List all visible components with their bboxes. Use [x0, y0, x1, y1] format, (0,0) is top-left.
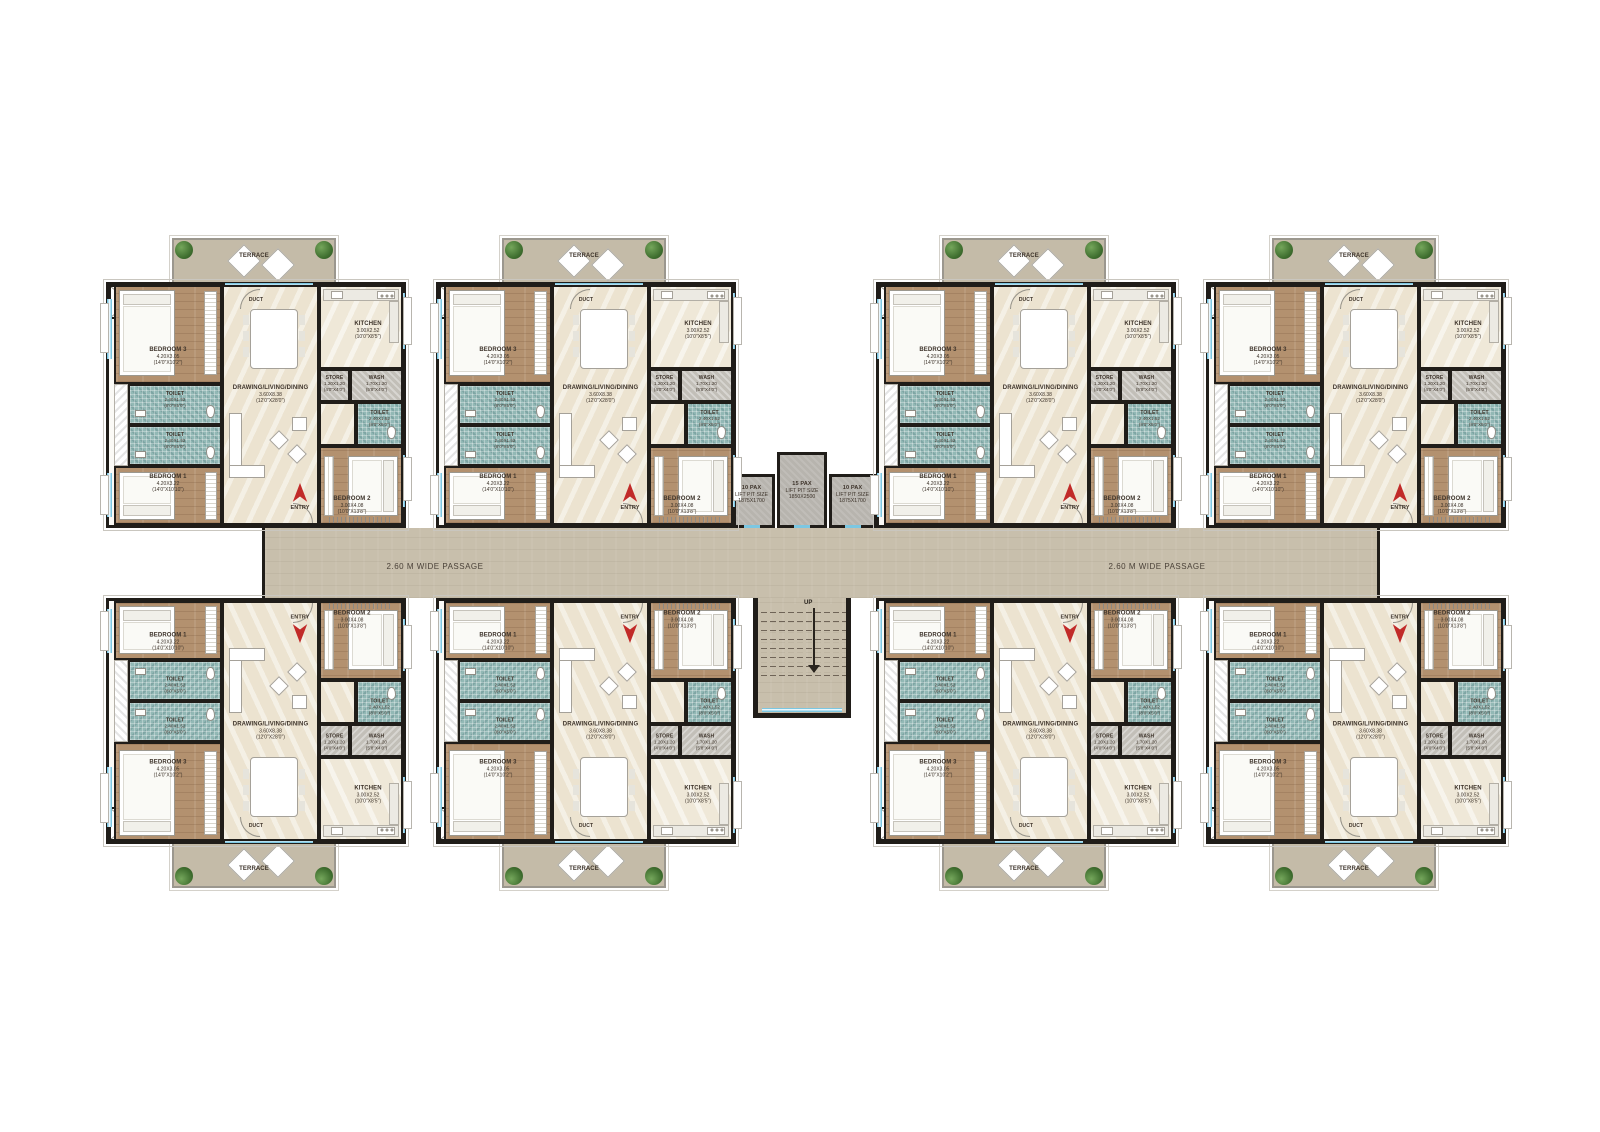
room-dim-ft: (14'0"X10'2"): [446, 360, 550, 366]
window-ledge: [430, 475, 439, 515]
room-label: KITCHEN 3.00X2.52 (10'0"X8'5"): [665, 785, 731, 805]
window-ledge: [733, 297, 742, 345]
room-toilet-2: TOILET 2.40X1.52 (8'0"X5'0"): [1228, 425, 1322, 466]
unit-body: BEDROOM 3 4.20X3.05 (14'0"X10'2") TOILET…: [876, 282, 1176, 528]
room-label: DRAWING/LIVING/DINING 3.60X8.38 (12'0"X2…: [224, 385, 317, 405]
room-label: TOILET 2.40X1.52 (8'0"X5'0"): [688, 410, 731, 427]
room-store: STORE 1.20X1.20 (4'0"X4'0"): [1419, 369, 1450, 402]
room-dim-ft: (4'0"X4'0"): [321, 745, 348, 751]
room-toilet-2: TOILET 2.40X1.52 (8'0"X5'0"): [458, 660, 552, 701]
room-label: TOILET 2.40X1.52 (8'0"X5'0"): [1128, 699, 1171, 716]
room-toilet-1: TOILET 2.40X1.52 (8'0"X5'0"): [128, 384, 222, 425]
unit-entry: ENTRY: [1055, 481, 1085, 523]
duct-label-text: DUCT: [109, 823, 403, 829]
room-label: BEDROOM 1 4.20X3.22 (14'0"X10'10"): [446, 632, 550, 652]
room-label: WASH 1.70X1.20 (5'8"X4'0"): [1122, 734, 1171, 751]
room-wash: WASH 1.70X1.20 (5'8"X4'0"): [680, 724, 733, 757]
room-label: TOILET 2.40X1.52 (8'0"X5'0"): [358, 410, 401, 427]
room-dim-ft: (8'0"X5'0"): [130, 444, 220, 450]
sofa-icon: [229, 465, 265, 478]
sofa-icon: [999, 648, 1035, 661]
room-lobby: [649, 402, 686, 446]
room-label: WASH 1.70X1.20 (5'8"X4'0"): [1452, 734, 1501, 751]
room-label: TOILET 2.40X1.52 (8'0"X5'0"): [460, 718, 550, 735]
room-dim-m: 1.20X1.20: [1091, 740, 1118, 746]
room-dim-ft: (14'0"X10'10"): [886, 487, 990, 493]
room-dim-ft: (12'0"X28'0"): [994, 398, 1087, 404]
room-label: TOILET 2.40X1.52 (8'0"X5'0"): [1458, 410, 1501, 427]
sofa-icon: [1329, 659, 1342, 713]
window-ledge: [100, 475, 109, 515]
room-name: BEDROOM 2: [1421, 496, 1483, 503]
room-wash: WASH 1.70X1.20 (5'8"X4'0"): [680, 369, 733, 402]
armchair-icon: [292, 695, 307, 709]
armchair-icon: [1392, 417, 1407, 431]
room-dim-ft: (5'8"X4'0"): [1122, 387, 1171, 393]
lift-label: 10 PAX LIFT PIT SIZE 1875X1700: [731, 485, 772, 505]
window-ledge: [100, 303, 109, 353]
dining-table-icon: [1020, 309, 1068, 369]
entry-label: ENTRY: [615, 505, 645, 512]
duct-label: DUCT: [879, 823, 1173, 829]
washbasin-icon: [135, 451, 146, 458]
room-dim-ft: (5'8"X4'0"): [682, 387, 731, 393]
room-lobby: [1089, 402, 1126, 446]
room-label: BEDROOM 1 4.20X3.22 (14'0"X10'10"): [116, 474, 220, 494]
room-label: TOILET 2.40X1.52 (8'0"X5'0"): [900, 718, 990, 735]
entry-arrow-icon: [1392, 483, 1408, 503]
room-label: BEDROOM 2 3.00X4.08 (10'0"X13'8"): [1421, 496, 1483, 516]
room-name: BEDROOM 3: [116, 759, 220, 766]
room-toilet-1: TOILET 2.40X1.52 (8'0"X5'0"): [898, 701, 992, 742]
room-toilet-1: TOILET 2.40X1.52 (8'0"X5'0"): [458, 701, 552, 742]
room-dim-ft: (8'0"X5'0"): [358, 710, 401, 716]
room-label: TOILET 2.40X1.52 (8'0"X5'0"): [1230, 677, 1320, 694]
room-dim-ft: (14'0"X10'2"): [1216, 360, 1320, 366]
room-dim-ft: (12'0"X28'0"): [554, 398, 647, 404]
terrace-label: TERRACE: [504, 866, 664, 873]
room-label: BEDROOM 3 4.20X3.05 (14'0"X10'2"): [1216, 759, 1320, 779]
unit-body: BEDROOM 3 4.20X3.05 (14'0"X10'2") TOILET…: [436, 282, 736, 528]
room-dim-ft: (14'0"X10'10"): [886, 646, 990, 652]
staircase: UP: [753, 598, 851, 718]
terrace-label-text: TERRACE: [944, 866, 1104, 873]
lift-door: [845, 525, 861, 528]
room-dim-ft: (8'0"X5'0"): [460, 729, 550, 735]
room-bedroom-1: BEDROOM 1 4.20X3.22 (14'0"X10'10"): [444, 466, 552, 525]
room-dim-ft: (4'0"X4'0"): [1091, 745, 1118, 751]
window-grill: [1429, 517, 1493, 523]
toilet-wc-icon: [1157, 426, 1166, 439]
louver-shaft: [884, 660, 898, 742]
coffee-table-icon: [269, 430, 289, 450]
room-dim-m: 1.20X1.20: [651, 381, 678, 387]
room-name: KITCHEN: [1435, 321, 1501, 328]
room-label: TOILET 2.40X1.52 (8'0"X5'0"): [688, 699, 731, 716]
room-label: TOILET 2.40X1.52 (8'0"X5'0"): [1230, 432, 1320, 449]
room-label: DRAWING/LIVING/DINING 3.60X8.38 (12'0"X2…: [224, 721, 317, 741]
window-ledge: [1503, 297, 1512, 345]
room-name: BEDROOM 1: [446, 632, 550, 639]
duct-label: DUCT: [439, 297, 733, 303]
unit-entry: ENTRY: [285, 603, 315, 645]
terrace: TERRACE: [1272, 238, 1436, 286]
unit-entry: ENTRY: [285, 481, 315, 523]
room-name: DRAWING/LIVING/DINING: [224, 721, 317, 728]
louver-shaft: [114, 384, 128, 466]
room-bedroom-2: BEDROOM 2 3.00X4.08 (10'0"X13'8"): [319, 601, 403, 680]
room-dim-ft: (12'0"X28'0"): [1324, 398, 1417, 404]
room-toilet-2: TOILET 2.40X1.52 (8'0"X5'0"): [898, 660, 992, 701]
room-label: TOILET 2.40X1.52 (8'0"X5'0"): [900, 677, 990, 694]
room-dim-ft: (4'0"X4'0"): [1421, 387, 1448, 393]
entry-label: ENTRY: [1385, 505, 1415, 512]
apartment-unit-top-1: TERRACE BEDROOM 3 4.20X3.05 (14'0"X10'2"…: [106, 238, 406, 528]
room-dim-ft: (10'0"X8'5"): [1435, 799, 1501, 805]
room-name: KITCHEN: [665, 785, 731, 792]
terrace-label-text: TERRACE: [504, 253, 664, 260]
toilet-wc-icon: [387, 426, 396, 439]
terrace-label: TERRACE: [944, 253, 1104, 260]
toilet-wc-icon: [1487, 426, 1496, 439]
room-name: KITCHEN: [1435, 785, 1501, 792]
room-dim-ft: (8'0"X5'0"): [688, 710, 731, 716]
duct-label-text: DUCT: [439, 297, 733, 303]
room-label: KITCHEN 3.00X2.52 (10'0"X8'5"): [1105, 321, 1171, 341]
room-bedroom-2: BEDROOM 2 3.00X4.08 (10'0"X13'8"): [1419, 601, 1503, 680]
room-label: BEDROOM 1 4.20X3.22 (14'0"X10'10"): [1216, 474, 1320, 494]
room-dim-ft: (10'0"X8'5"): [665, 334, 731, 340]
entry-label-text: ENTRY: [615, 505, 645, 512]
room-name: BEDROOM 1: [116, 474, 220, 481]
room-dim-m: 1.20X1.20: [651, 740, 678, 746]
window-ledge: [403, 457, 412, 501]
armchair-icon: [292, 417, 307, 431]
room-wash: WASH 1.70X1.20 (5'8"X4'0"): [1450, 724, 1503, 757]
sofa-icon: [559, 648, 595, 661]
louver-shaft: [1214, 660, 1228, 742]
lift-pax: 10 PAX: [731, 485, 772, 492]
terrace: TERRACE: [1272, 840, 1436, 888]
window-ledge: [1200, 611, 1209, 651]
window-ledge: [1173, 297, 1182, 345]
room-name: BEDROOM 1: [1216, 474, 1320, 481]
room-dim-m: 1.20X1.20: [321, 740, 348, 746]
room-bedroom-2: BEDROOM 2 3.00X4.08 (10'0"X13'8"): [1089, 446, 1173, 525]
room-label: WASH 1.70X1.20 (5'8"X4'0"): [682, 375, 731, 392]
washbasin-icon: [905, 410, 916, 417]
unit-body: BEDROOM 3 4.20X3.05 (14'0"X10'2") TOILET…: [436, 598, 736, 844]
room-label: DRAWING/LIVING/DINING 3.60X8.38 (12'0"X2…: [1324, 721, 1417, 741]
entry-label-text: ENTRY: [1385, 505, 1415, 512]
entry-arrow-icon: [622, 483, 638, 503]
unit-entry: ENTRY: [1385, 481, 1415, 523]
room-bedroom-2: BEDROOM 2 3.00X4.08 (10'0"X13'8"): [649, 446, 733, 525]
room-name: BEDROOM 2: [651, 496, 713, 503]
room-label: KITCHEN 3.00X2.52 (10'0"X8'5"): [335, 785, 401, 805]
room-lobby: [319, 402, 356, 446]
room-label: TOILET 2.40X1.52 (8'0"X5'0"): [900, 432, 990, 449]
room-label: TOILET 2.40X1.52 (8'0"X5'0"): [1230, 391, 1320, 408]
unit-entry: ENTRY: [1385, 603, 1415, 645]
room-label: TOILET 2.40X1.52 (8'0"X5'0"): [1230, 718, 1320, 735]
room-lobby: [1419, 402, 1456, 446]
room-label: KITCHEN 3.00X2.52 (10'0"X8'5"): [1435, 785, 1501, 805]
room-label: WASH 1.70X1.20 (5'8"X4'0"): [1122, 375, 1171, 392]
room-label: DRAWING/LIVING/DINING 3.60X8.38 (12'0"X2…: [994, 385, 1087, 405]
terrace: TERRACE: [942, 840, 1106, 888]
entry-label: ENTRY: [285, 614, 315, 621]
room-dim-ft: (5'8"X4'0"): [1452, 745, 1501, 751]
floor-plan: 2.60 M WIDE PASSAGE 2.60 M WIDE PASSAGE …: [0, 0, 1600, 1132]
window-ledge: [1173, 457, 1182, 501]
room-label: BEDROOM 3 4.20X3.05 (14'0"X10'2"): [446, 347, 550, 367]
lift-pax: 10 PAX: [832, 485, 873, 492]
terrace-label: TERRACE: [944, 866, 1104, 873]
armchair-icon: [622, 417, 637, 431]
window-grill: [329, 517, 393, 523]
coffee-table-icon: [1039, 430, 1059, 450]
sofa-icon: [229, 659, 242, 713]
room-toilet-1: TOILET 2.40X1.52 (8'0"X5'0"): [1228, 701, 1322, 742]
room-toilet-3: TOILET 2.40X1.52 (8'0"X5'0"): [1126, 680, 1173, 724]
room-dim-ft: (8'0"X5'0"): [900, 403, 990, 409]
room-label: WASH 1.70X1.20 (5'8"X4'0"): [352, 734, 401, 751]
room-dim-ft: (10'0"X13'8"): [651, 624, 713, 630]
window-ledge: [1503, 781, 1512, 829]
room-bedroom-1: BEDROOM 1 4.20X3.22 (14'0"X10'10"): [884, 601, 992, 660]
entry-arrow-icon: [292, 623, 308, 643]
terrace-label-text: TERRACE: [944, 253, 1104, 260]
room-toilet-3: TOILET 2.40X1.52 (8'0"X5'0"): [356, 680, 403, 724]
room-dim-ft: (10'0"X8'5"): [335, 799, 401, 805]
lift-door: [744, 525, 760, 528]
room-toilet-2: TOILET 2.40X1.52 (8'0"X5'0"): [458, 425, 552, 466]
room-toilet-3: TOILET 2.40X1.52 (8'0"X5'0"): [686, 680, 733, 724]
entry-arrow-icon: [1392, 623, 1408, 643]
room-dim-ft: (14'0"X10'2"): [886, 773, 990, 779]
lift-label: 15 PAX LIFT PIT SIZE 1850X2500: [780, 481, 824, 501]
room-label: BEDROOM 3 4.20X3.05 (14'0"X10'2"): [116, 759, 220, 779]
room-toilet-3: TOILET 2.40X1.52 (8'0"X5'0"): [686, 402, 733, 446]
room-store: STORE 1.20X1.20 (4'0"X4'0"): [319, 724, 350, 757]
room-toilet-1: TOILET 2.40X1.52 (8'0"X5'0"): [1228, 384, 1322, 425]
window-ledge: [100, 611, 109, 651]
room-lobby: [1089, 680, 1126, 724]
room-bedroom-2: BEDROOM 2 3.00X4.08 (10'0"X13'8"): [649, 601, 733, 680]
duct-label-text: DUCT: [1209, 823, 1503, 829]
room-label: BEDROOM 2 3.00X4.08 (10'0"X13'8"): [1421, 610, 1483, 630]
room-label: BEDROOM 1 4.20X3.22 (14'0"X10'10"): [886, 474, 990, 494]
room-dim-ft: (12'0"X28'0"): [1324, 735, 1417, 741]
room-label: TOILET 2.40X1.52 (8'0"X5'0"): [460, 391, 550, 408]
room-label: DRAWING/LIVING/DINING 3.60X8.38 (12'0"X2…: [554, 385, 647, 405]
room-dim-ft: (8'0"X5'0"): [900, 444, 990, 450]
room-dim-ft: (8'0"X5'0"): [130, 403, 220, 409]
window-ledge: [870, 303, 879, 353]
room-label: STORE 1.20X1.20 (4'0"X4'0"): [1421, 375, 1448, 392]
lift-pit-size: 1875X1700: [832, 498, 873, 505]
duct-label: DUCT: [109, 297, 403, 303]
room-wash: WASH 1.70X1.20 (5'8"X4'0"): [1120, 369, 1173, 402]
window-ledge: [733, 781, 742, 829]
entry-label-text: ENTRY: [285, 614, 315, 621]
room-label: TOILET 2.40X1.52 (8'0"X5'0"): [130, 718, 220, 735]
lounge-chair-icon: [1327, 244, 1361, 278]
room-store: STORE 1.20X1.20 (4'0"X4'0"): [1089, 724, 1120, 757]
room-dim-ft: (14'0"X10'10"): [446, 487, 550, 493]
room-toilet-2: TOILET 2.40X1.52 (8'0"X5'0"): [898, 425, 992, 466]
room-name: KITCHEN: [1105, 321, 1171, 328]
room-label: STORE 1.20X1.20 (4'0"X4'0"): [321, 734, 348, 751]
armchair-icon: [1062, 695, 1077, 709]
room-dim-ft: (8'0"X5'0"): [1230, 688, 1320, 694]
room-label: STORE 1.20X1.20 (4'0"X4'0"): [1421, 734, 1448, 751]
room-toilet-2: TOILET 2.40X1.52 (8'0"X5'0"): [128, 660, 222, 701]
room-bedroom-1: BEDROOM 1 4.20X3.22 (14'0"X10'10"): [884, 466, 992, 525]
window-ledge: [1200, 475, 1209, 515]
armchair-icon: [622, 695, 637, 709]
room-name: KITCHEN: [1105, 785, 1171, 792]
room-label: KITCHEN 3.00X2.52 (10'0"X8'5"): [1435, 321, 1501, 341]
louver-shaft: [444, 384, 458, 466]
room-label: TOILET 2.40X1.52 (8'0"X5'0"): [460, 432, 550, 449]
washbasin-icon: [905, 451, 916, 458]
room-toilet-3: TOILET 2.40X1.52 (8'0"X5'0"): [1126, 402, 1173, 446]
apartment-unit-bottom-4: TERRACE BEDROOM 3 4.20X3.05 (14'0"X10'2"…: [1206, 598, 1506, 888]
room-label: DRAWING/LIVING/DINING 3.60X8.38 (12'0"X2…: [994, 721, 1087, 741]
sofa-icon: [559, 465, 595, 478]
apartment-unit-top-4: TERRACE BEDROOM 3 4.20X3.05 (14'0"X10'2"…: [1206, 238, 1506, 528]
room-label: WASH 1.70X1.20 (5'8"X4'0"): [682, 734, 731, 751]
washbasin-icon: [465, 709, 476, 716]
room-dim-ft: (12'0"X28'0"): [224, 398, 317, 404]
room-dim-ft: (10'0"X8'5"): [1105, 334, 1171, 340]
apartment-unit-bottom-2: TERRACE BEDROOM 3 4.20X3.05 (14'0"X10'2"…: [436, 598, 736, 888]
lift-pit-size: 1875X1700: [731, 498, 772, 505]
room-label: STORE 1.20X1.20 (4'0"X4'0"): [651, 734, 678, 751]
passage-corridor: 2.60 M WIDE PASSAGE 2.60 M WIDE PASSAGE: [262, 528, 1380, 598]
room-name: BEDROOM 3: [446, 347, 550, 354]
washbasin-icon: [1235, 451, 1246, 458]
window-ledge: [870, 611, 879, 651]
room-name: BEDROOM 3: [1216, 759, 1320, 766]
armchair-icon: [1062, 417, 1077, 431]
duct-label: DUCT: [439, 823, 733, 829]
room-label: STORE 1.20X1.20 (4'0"X4'0"): [1091, 734, 1118, 751]
room-dim-ft: (14'0"X10'2"): [446, 773, 550, 779]
dining-table-icon: [1350, 309, 1398, 369]
window-grill: [1429, 603, 1493, 609]
dining-table-icon: [1350, 757, 1398, 817]
room-bedroom-1: BEDROOM 1 4.20X3.22 (14'0"X10'10"): [114, 601, 222, 660]
room-dim-ft: (8'0"X5'0"): [1458, 710, 1501, 716]
room-dim-ft: (5'8"X4'0"): [1452, 387, 1501, 393]
window-ledge: [430, 611, 439, 651]
unit-entry: ENTRY: [615, 481, 645, 523]
washbasin-icon: [135, 709, 146, 716]
room-dim-m: 1.20X1.20: [1421, 381, 1448, 387]
sofa-icon: [1329, 648, 1365, 661]
lift-label: 10 PAX LIFT PIT SIZE 1875X1700: [832, 485, 873, 505]
room-dim-ft: (4'0"X4'0"): [321, 387, 348, 393]
window-ledge: [733, 625, 742, 669]
room-label: STORE 1.20X1.20 (4'0"X4'0"): [321, 375, 348, 392]
coffee-table-icon: [1039, 676, 1059, 696]
terrace-label: TERRACE: [1274, 253, 1434, 260]
room-toilet-3: TOILET 2.40X1.52 (8'0"X5'0"): [1456, 402, 1503, 446]
room-label: TOILET 2.40X1.52 (8'0"X5'0"): [1458, 699, 1501, 716]
room-label: TOILET 2.40X1.52 (8'0"X5'0"): [460, 677, 550, 694]
room-name: BEDROOM 1: [446, 474, 550, 481]
terrace: TERRACE: [172, 840, 336, 888]
room-label: TOILET 2.40X1.52 (8'0"X5'0"): [358, 699, 401, 716]
room-label: STORE 1.20X1.20 (4'0"X4'0"): [1091, 375, 1118, 392]
duct-label-text: DUCT: [439, 823, 733, 829]
coffee-table-icon: [287, 662, 307, 682]
room-label: BEDROOM 2 3.00X4.08 (10'0"X13'8"): [651, 610, 713, 630]
window-ledge: [1173, 625, 1182, 669]
room-dim-ft: (14'0"X10'2"): [116, 773, 220, 779]
window-grill: [659, 517, 723, 523]
room-label: BEDROOM 1 4.20X3.22 (14'0"X10'10"): [886, 632, 990, 652]
room-dim-ft: (8'0"X5'0"): [900, 688, 990, 694]
sofa-icon: [559, 413, 572, 467]
room-dim-ft: (8'0"X5'0"): [900, 729, 990, 735]
room-dim-ft: (10'0"X13'8"): [651, 509, 713, 515]
room-name: BEDROOM 2: [651, 610, 713, 617]
louver-shaft: [114, 660, 128, 742]
window-ledge: [403, 297, 412, 345]
room-label: DRAWING/LIVING/DINING 3.60X8.38 (12'0"X2…: [554, 721, 647, 741]
passage-label-left: 2.60 M WIDE PASSAGE: [325, 562, 545, 571]
sofa-icon: [229, 413, 242, 467]
entry-label-text: ENTRY: [1055, 614, 1085, 621]
entry-label: ENTRY: [285, 505, 315, 512]
room-dim-ft: (8'0"X5'0"): [460, 403, 550, 409]
room-dim-ft: (4'0"X4'0"): [651, 745, 678, 751]
room-name: KITCHEN: [335, 321, 401, 328]
lift-10-pax-right: 10 PAX LIFT PIT SIZE 1875X1700: [829, 474, 876, 528]
room-dim-ft: (14'0"X10'10"): [446, 646, 550, 652]
room-dim-ft: (10'0"X13'8"): [321, 624, 383, 630]
unit-body: BEDROOM 3 4.20X3.05 (14'0"X10'2") TOILET…: [1206, 598, 1506, 844]
room-dim-ft: (8'0"X5'0"): [130, 729, 220, 735]
coffee-table-icon: [599, 676, 619, 696]
duct-label-text: DUCT: [1209, 297, 1503, 303]
room-label: KITCHEN 3.00X2.52 (10'0"X8'5"): [1105, 785, 1171, 805]
washbasin-icon: [1235, 709, 1246, 716]
washbasin-icon: [465, 410, 476, 417]
entry-label-text: ENTRY: [1385, 614, 1415, 621]
passage-label-right: 2.60 M WIDE PASSAGE: [1047, 562, 1267, 571]
room-dim-ft: (8'0"X5'0"): [130, 688, 220, 694]
entry-arrow-icon: [1062, 623, 1078, 643]
room-dim-ft: (8'0"X5'0"): [1230, 403, 1320, 409]
room-wash: WASH 1.70X1.20 (5'8"X4'0"): [1120, 724, 1173, 757]
room-dim-ft: (8'0"X5'0"): [1458, 422, 1501, 428]
room-dim-ft: (8'0"X5'0"): [1128, 710, 1171, 716]
room-wash: WASH 1.70X1.20 (5'8"X4'0"): [350, 369, 403, 402]
louver-shaft: [1214, 384, 1228, 466]
armchair-icon: [1392, 695, 1407, 709]
washbasin-icon: [465, 451, 476, 458]
dining-table-icon: [250, 757, 298, 817]
washbasin-icon: [465, 668, 476, 675]
lift-door: [794, 525, 810, 528]
entry-label: ENTRY: [1055, 614, 1085, 621]
room-name: BEDROOM 2: [1091, 610, 1153, 617]
